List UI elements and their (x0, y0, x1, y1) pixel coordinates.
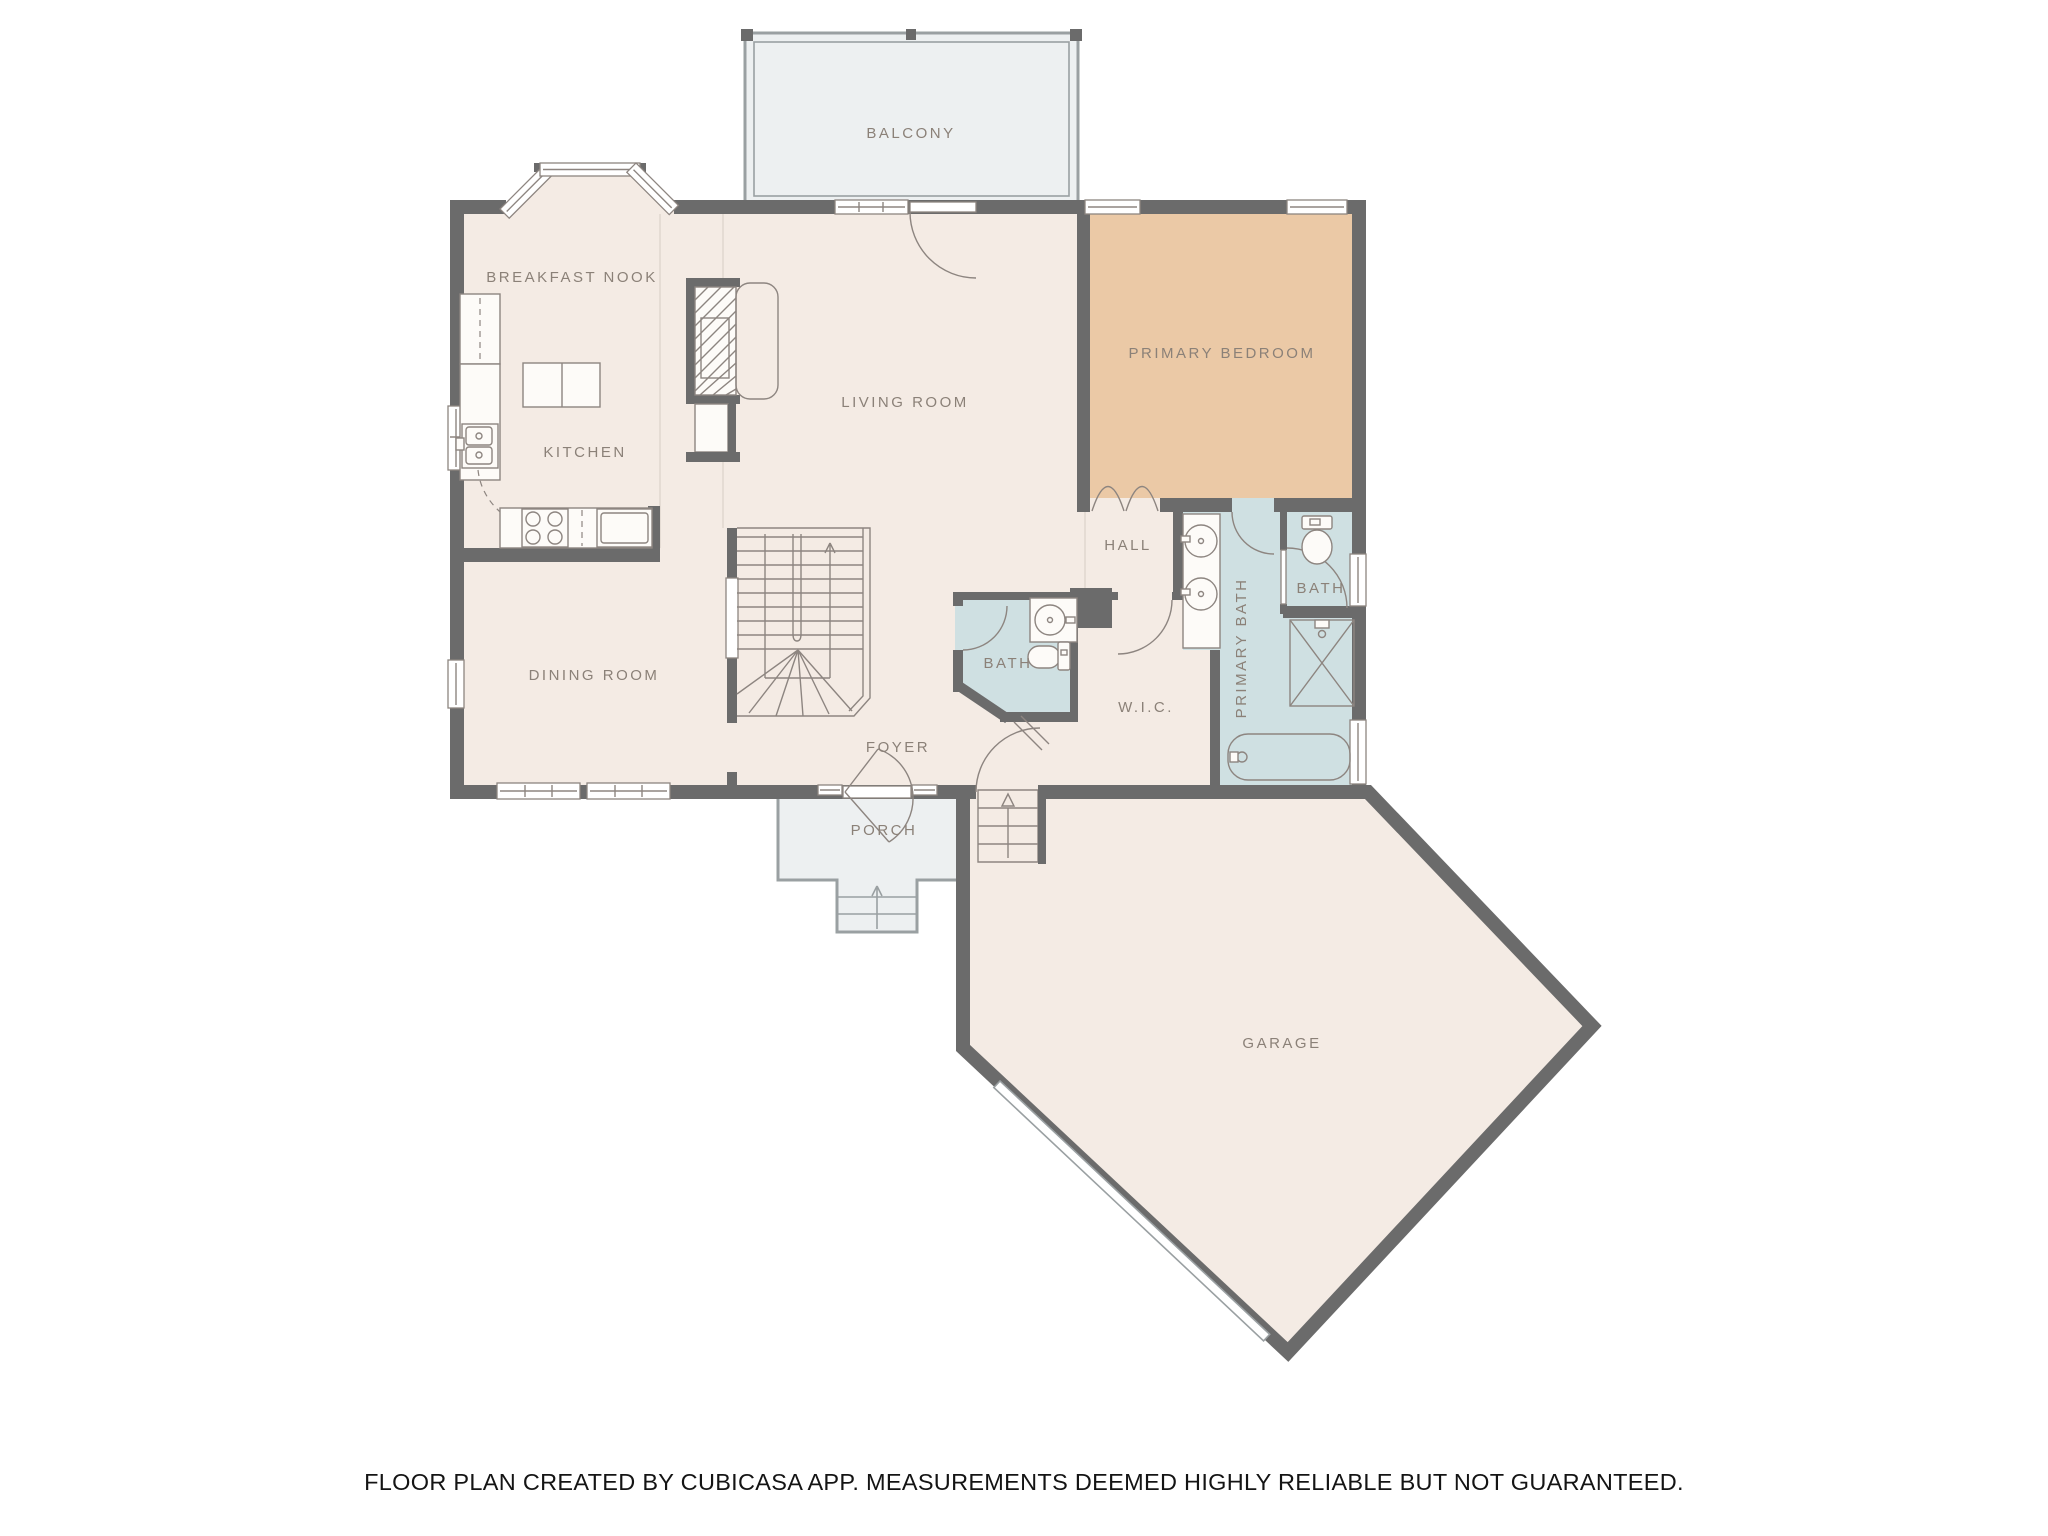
wic-primarybath-wall (1210, 650, 1220, 790)
foyer-label: FOYER (866, 739, 930, 756)
balcony-area (745, 33, 1078, 205)
garage-floor (963, 792, 1592, 1352)
top-exterior-wall (674, 200, 1366, 214)
window (1085, 200, 1140, 214)
garage-steps (978, 785, 1046, 864)
hall-label: HALL (1104, 537, 1152, 554)
front-door-sidelite (818, 785, 842, 795)
kitchen-sink (456, 424, 498, 468)
floor-plan-drawing: BALCONY BREAKFAST NOOK KITCHEN LIVING RO… (0, 0, 2048, 1536)
wic-label: W.I.C. (1118, 699, 1174, 716)
floor-plan-page: BALCONY BREAKFAST NOOK KITCHEN LIVING RO… (0, 0, 2048, 1536)
front-door-sidelite (912, 785, 937, 795)
kitchen-label: KITCHEN (543, 444, 626, 461)
toilet (1302, 516, 1332, 564)
sink (1035, 605, 1065, 635)
faucet (1066, 617, 1075, 623)
fireplace-cabinet (695, 404, 728, 452)
floor-areas (456, 29, 1592, 1352)
porch-label: PORCH (851, 822, 918, 839)
faucet (456, 438, 464, 450)
balcony-label: BALCONY (866, 125, 955, 142)
left-exterior-wall (450, 200, 464, 799)
window (835, 200, 908, 214)
primary-bath-floor-right (1287, 613, 1358, 790)
living-room-label: LIVING ROOM (841, 394, 969, 411)
hall-bath-label: BATH (1297, 580, 1346, 597)
hall-bath-fixtures (1302, 516, 1332, 564)
primary-bath-label: PRIMARY BATH (1233, 578, 1250, 719)
dining-room-label: DINING ROOM (529, 667, 660, 684)
window (448, 660, 464, 708)
bedroom-left-wall (1077, 206, 1090, 512)
disclaimer-text: FLOOR PLAN CREATED BY CUBICASA APP. MEAS… (0, 1469, 2048, 1496)
window (1287, 200, 1347, 214)
foyer-bath-fixtures (1028, 598, 1077, 670)
window (1350, 554, 1366, 606)
breakfast-nook-label: BREAKFAST NOOK (486, 269, 657, 286)
porch-area (778, 795, 967, 932)
window (587, 783, 670, 799)
dishwasher (597, 509, 652, 547)
garage-label: GARAGE (1242, 1035, 1321, 1052)
primary-bedroom-label: PRIMARY BEDROOM (1129, 345, 1316, 362)
hallbath-shower-wall (1283, 606, 1366, 618)
foyer-bath-label: BATH (984, 655, 1033, 672)
window (497, 783, 580, 799)
stove (522, 509, 568, 547)
kitchen-dining-wall (450, 548, 660, 562)
stair-railing-opening (726, 578, 738, 658)
faucet (1181, 589, 1190, 595)
faucet (1181, 536, 1190, 542)
window (1350, 720, 1366, 784)
